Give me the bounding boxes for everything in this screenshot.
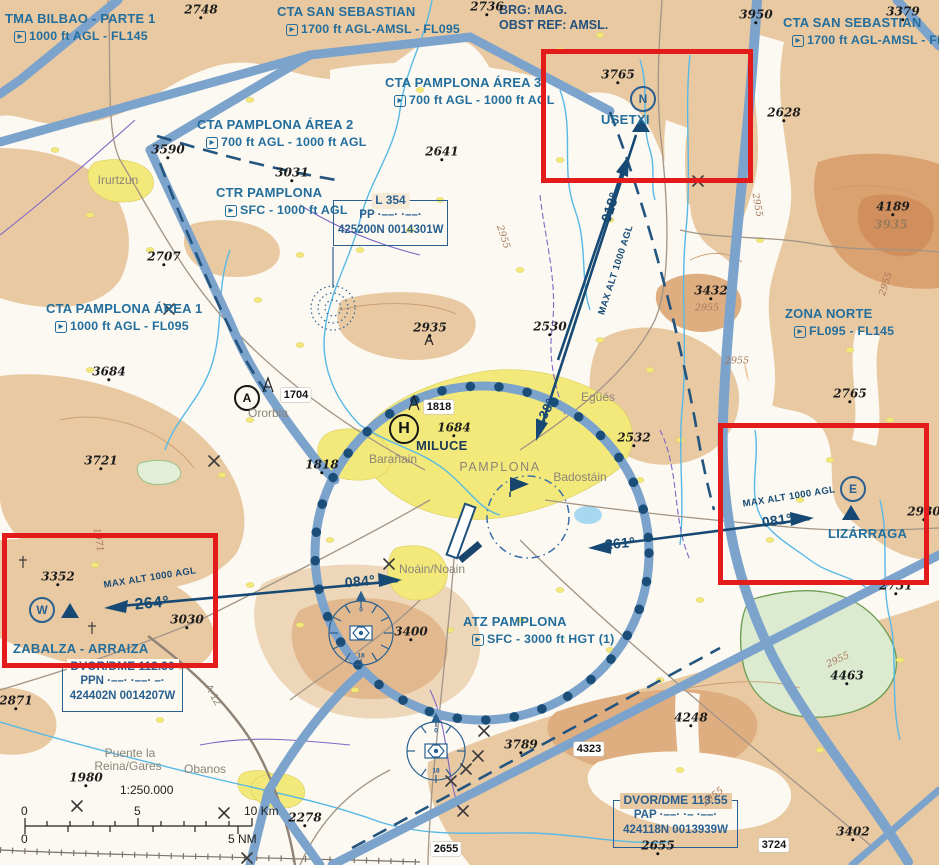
spot-elevation-2707: 2707 [147, 249, 180, 263]
airspace-limits-text: SFC - 3000 ft HGT (1) [487, 631, 614, 648]
airspace-limits-text: SFC - 1000 ft AGL [240, 202, 348, 219]
spot-elevation-2641: 2641 [425, 144, 458, 158]
spot-elevation-dot [15, 707, 18, 710]
spot-elevation-2765: 2765 [833, 386, 866, 400]
spot-elevation-2871: 2871 [0, 693, 33, 707]
class-d-airspace-icon: ▶ [472, 634, 484, 646]
spot-elevation-dot [895, 592, 898, 595]
airspace-name: CTA PAMPLONA ÁREA 3 [385, 74, 555, 92]
boxed-elevation-3724: 3724 [759, 838, 789, 852]
spot-elevation-4463: 4463 [830, 668, 863, 682]
airspace-limits-text: 700 ft AGL - 1000 ft AGL [409, 92, 555, 109]
chart-note-obst: OBST REF: AMSL. [499, 18, 608, 34]
airspace-label-atz-pamplona: ATZ PAMPLONA▶SFC - 3000 ft HGT (1) [463, 613, 614, 649]
spot-elevation-3590: 3590 [151, 142, 184, 156]
spot-elevation-3402: 3402 [836, 824, 869, 838]
airspace-limits: ▶1700 ft AGL-AMSL - FL095 [792, 32, 939, 49]
rose-label-north: 0 [434, 728, 438, 735]
airspace-limits: ▶1000 ft AGL - FL095 [55, 318, 202, 335]
highlight-zabalza [2, 533, 218, 668]
navaid-ident-morse: PP ·––· ·––· [338, 208, 443, 223]
airspace-limits: ▶1000 ft AGL - FL145 [14, 28, 156, 45]
scale-nm-5: 5 NM [228, 832, 257, 846]
rose-label-south: 18 [432, 768, 439, 775]
route-bearing-138: 138° [532, 396, 558, 428]
spot-elevation-dot [291, 179, 294, 182]
spot-elevation-2935: 2935 [413, 320, 446, 334]
route-bearing-018: 018° [598, 190, 623, 224]
boxed-elevation-4323: 4323 [574, 742, 604, 756]
airspace-limits: ▶1700 ft AGL-AMSL - FL095 [286, 21, 460, 38]
airspace-limits-text: 1700 ft AGL-AMSL - FL095 [301, 21, 460, 38]
navaid-coords: 424118N 0013939W [618, 823, 733, 838]
spot-elevation-dot [549, 333, 552, 336]
navaid-ident-morse: PAP ·––· ·– ·––· [618, 808, 733, 823]
contour-label-2955: 2955 [825, 650, 852, 670]
spot-elevation-2532: 2532 [617, 430, 650, 444]
route-bearing-261: 261° [604, 534, 636, 553]
spot-elevation-2278: 2278 [288, 810, 321, 824]
spot-elevation-dot [846, 682, 849, 685]
spot-elevation-dot [108, 378, 111, 381]
spot-elevation-2655: 2655 [641, 838, 674, 852]
airspace-label-tma-bilbao-parte-1: TMA BILBAO - PARTE 1▶1000 ft AGL - FL145 [5, 10, 156, 46]
spot-elevation-dot [453, 434, 456, 437]
spot-elevation-3935: 3935 [874, 217, 907, 231]
airspace-label-cta-pamplona-area-3: CTA PAMPLONA ÁREA 3▶700 ft AGL - 1000 ft… [385, 74, 555, 110]
spot-elevation-dot [486, 13, 489, 16]
airspace-label-cta-san-sebastian-west: CTA SAN SEBASTIAN▶1700 ft AGL-AMSL - FL0… [277, 3, 460, 39]
spot-elevation-dot [163, 263, 166, 266]
spot-elevation-dot [85, 784, 88, 787]
spot-elevation-4189: 4189 [876, 199, 909, 213]
scale-km-0: 0 [21, 804, 28, 818]
airspace-label-zona-norte: ZONA NORTE▶FL095 - FL145 [785, 305, 894, 341]
rose-label-south: 18 [357, 653, 364, 660]
navaid-coords: 424402N 0014207W [67, 689, 178, 704]
spot-elevation-dot [200, 16, 203, 19]
spot-elevation-dot [783, 119, 786, 122]
navaid-title: L 354 [371, 193, 409, 209]
scale-km-5: 5 [134, 804, 141, 818]
airspace-name: TMA BILBAO - PARTE 1 [5, 10, 156, 28]
chart-note-brg: BRG: MAG. [499, 3, 567, 19]
place-name-obanos: Obanos [184, 762, 226, 776]
airspace-limits-text: 1000 ft AGL - FL095 [70, 318, 189, 335]
spot-elevation-1818: 1818 [305, 457, 338, 471]
spot-elevation-3721: 3721 [84, 453, 117, 467]
scale-nm-0: 0 [21, 832, 28, 846]
class-d-airspace-icon: ▶ [792, 35, 804, 47]
navaid-box-dvor-dme-ppn: DVOR/DME 112.30PPN ·––· ·––· –·424402N 0… [62, 666, 183, 712]
place-name-puente-la: Puente la [105, 746, 156, 760]
airspace-limits: ▶700 ft AGL - 1000 ft AGL [394, 92, 555, 109]
class-d-airspace-icon: ▶ [206, 137, 218, 149]
scale-ratio: 1:250.000 [120, 783, 173, 797]
vfr-chart-pamplona: BRG: MAG. OBST REF: AMSL. 1:250.000 0 5 … [0, 0, 939, 865]
contour-label-2955: 2955 [877, 271, 895, 297]
airspace-limits-text: FL095 - FL145 [809, 323, 894, 340]
place-name-ororbia: Ororbia [248, 406, 288, 420]
place-name-pamplona: PAMPLONA [459, 460, 540, 474]
class-d-airspace-icon: ▶ [225, 205, 237, 217]
spot-elevation-dot [849, 400, 852, 403]
poi-circle-H: H [389, 414, 419, 444]
place-name-a-12: A-12 [202, 682, 223, 707]
spot-elevation-dot [657, 852, 660, 855]
spot-elevation-3379: 3379 [886, 4, 919, 18]
spot-elevation-dot [100, 467, 103, 470]
contour-label-2955: 2955 [749, 192, 764, 218]
place-name-reina-gares: Reina/Gares [94, 759, 161, 773]
spot-elevation-1684: 1684 [437, 420, 470, 434]
spot-elevation-4248: 4248 [674, 710, 707, 724]
spot-elevation-dot [755, 21, 758, 24]
boxed-elevation-1818: 1818 [424, 400, 454, 414]
airspace-label-cta-pamplona-area-1: CTA PAMPLONA ÁREA 1▶1000 ft AGL - FL095 [46, 300, 202, 336]
poi-label-miluce: MILUCE [416, 438, 468, 453]
class-d-airspace-icon: ▶ [55, 321, 67, 333]
airspace-limits-text: 1700 ft AGL-AMSL - FL095 [807, 32, 939, 49]
contour-label-2955: 2955 [695, 303, 719, 314]
scale-km-10: 10 Km [244, 804, 279, 818]
route-bearing-084: 084° [344, 572, 376, 591]
airspace-name: CTA SAN SEBASTIAN [277, 3, 460, 21]
airspace-limits-text: 700 ft AGL - 1000 ft AGL [221, 134, 367, 151]
spot-elevation-2736: 2736 [470, 0, 503, 13]
spot-elevation-2628: 2628 [767, 105, 800, 119]
place-name-bara-ain: Barañain [369, 452, 417, 466]
boxed-elevation-2655: 2655 [431, 842, 461, 856]
spot-elevation-3432: 3432 [694, 283, 727, 297]
airspace-limits: ▶700 ft AGL - 1000 ft AGL [206, 134, 367, 151]
spot-elevation-dot [892, 213, 895, 216]
spot-elevation-3031: 3031 [275, 165, 308, 179]
place-name-eg-s: Egüés [581, 390, 615, 404]
spot-elevation-dot [429, 334, 432, 337]
class-d-airspace-icon: ▶ [14, 31, 26, 43]
navaid-box-l-354: L 354PP ·––· ·––·425200N 0014301W [333, 200, 448, 246]
class-d-airspace-icon: ▶ [286, 24, 298, 36]
airspace-limits: ▶SFC - 3000 ft HGT (1) [472, 631, 614, 648]
navaid-coords: 425200N 0014301W [338, 223, 443, 238]
spot-elevation-3400: 3400 [394, 624, 427, 638]
airspace-label-cta-san-sebastian-east: CTA SAN SEBASTIAN▶1700 ft AGL-AMSL - FL0… [783, 14, 939, 50]
airspace-limits-text: 1000 ft AGL - FL145 [29, 28, 148, 45]
airspace-name: ATZ PAMPLONA [463, 613, 614, 631]
spot-elevation-dot [690, 724, 693, 727]
contour-label-2955: 2955 [725, 356, 749, 367]
spot-elevation-dot [852, 838, 855, 841]
spot-elevation-2748: 2748 [184, 2, 217, 16]
place-name-no-in-noain: Noáin/Noain [399, 562, 465, 576]
rose-label-north: 0 [359, 607, 363, 614]
class-d-airspace-icon: ▶ [794, 326, 806, 338]
airspace-label-cta-pamplona-area-2: CTA PAMPLONA ÁREA 2▶700 ft AGL - 1000 ft… [197, 116, 367, 152]
spot-elevation-3950: 3950 [739, 7, 772, 21]
highlight-usetxi [541, 49, 753, 183]
spot-elevation-3789: 3789 [504, 737, 537, 751]
airspace-name: CTR PAMPLONA [216, 184, 348, 202]
airspace-name: ZONA NORTE [785, 305, 894, 323]
highlight-lizarraga [718, 423, 929, 585]
airspace-name: CTA PAMPLONA ÁREA 1 [46, 300, 202, 318]
navaid-box-dvor-dme-pap: DVOR/DME 113.55PAP ·––· ·– ·––·424118N 0… [613, 800, 738, 848]
spot-elevation-dot [321, 471, 324, 474]
spot-elevation-3684: 3684 [92, 364, 125, 378]
place-name-irurtzun: Irurtzun [98, 173, 139, 187]
contour-label-2955: 2955 [494, 224, 512, 250]
spot-elevation-dot [410, 638, 413, 641]
spot-elevation-dot [520, 751, 523, 754]
spot-elevation-dot [441, 158, 444, 161]
spot-elevation-2530: 2530 [533, 319, 566, 333]
airspace-label-ctr-pamplona: CTR PAMPLONA▶SFC - 1000 ft AGL [216, 184, 348, 220]
airspace-limits: ▶SFC - 1000 ft AGL [225, 202, 348, 219]
navaid-ident-morse: PPN ·––· ·––· –· [67, 674, 178, 689]
spot-elevation-dot [633, 444, 636, 447]
class-d-airspace-icon: ▶ [394, 95, 406, 107]
spot-elevation-dot [304, 824, 307, 827]
airspace-limits: ▶FL095 - FL145 [794, 323, 894, 340]
place-name-badost-in: Badostáin [553, 470, 606, 484]
boxed-elevation-1704: 1704 [281, 388, 311, 402]
spot-elevation-dot [167, 156, 170, 159]
label-layer: BRG: MAG. OBST REF: AMSL. 1:250.000 0 5 … [0, 0, 939, 865]
spot-elevation-dot [710, 297, 713, 300]
airspace-name: CTA PAMPLONA ÁREA 2 [197, 116, 367, 134]
route-max-alt-note: MAX ALT 1000 AGL [596, 224, 635, 316]
